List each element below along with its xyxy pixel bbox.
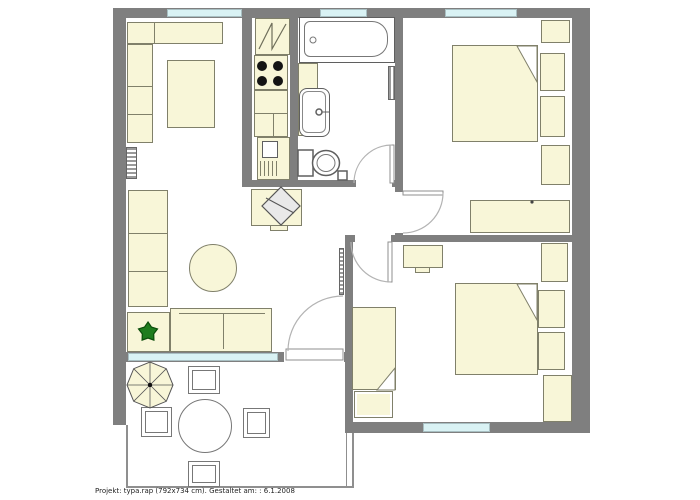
- wall-right: [572, 8, 590, 433]
- hall-desk-drawer: [270, 225, 288, 231]
- nightstand: [538, 332, 565, 370]
- radiator-bath-icon: [388, 66, 395, 100]
- corner-sofa-left: [127, 44, 153, 143]
- wall-kitchen-living: [242, 8, 252, 187]
- plant-table: [127, 312, 170, 352]
- coffee-table: [189, 244, 237, 292]
- bedroom2-desk: [403, 245, 443, 268]
- kitchen-drainboard: [260, 161, 278, 176]
- wardrobe: [541, 145, 570, 185]
- kitchen-sink-unit: [257, 137, 290, 180]
- radiator-living-icon: [126, 147, 137, 179]
- wardrobe: [543, 375, 572, 422]
- bedroom2-door-opening: [355, 234, 391, 243]
- fridge-icon: [255, 18, 290, 55]
- wall-bath-bedroom1: [395, 8, 403, 192]
- bedroom1-door-arc: [403, 193, 443, 233]
- bedroom1-door-leaf: [403, 191, 443, 195]
- nightstand: [538, 290, 565, 328]
- kitchen-sink-basin: [262, 141, 278, 158]
- wall-left: [113, 8, 126, 425]
- bedroom2-door-arc: [351, 242, 391, 282]
- terrace-door-arc: [288, 296, 343, 351]
- patio-chair: [188, 461, 220, 487]
- footer-caption: Projekt: typa.rap (792x734 cm). Gestalte…: [95, 487, 295, 495]
- kitchen-counter: [254, 90, 288, 137]
- hall-desk: [251, 189, 302, 226]
- nightstand: [540, 53, 565, 91]
- nightstand: [540, 96, 565, 137]
- wall-kitchen-bath: [290, 8, 298, 187]
- radiator-hall-icon: [339, 248, 344, 295]
- bedroom2-door-leaf: [388, 242, 392, 282]
- bath-door-leaf: [390, 145, 394, 183]
- sofa-left-wall: [128, 190, 168, 307]
- nightstand: [541, 20, 570, 43]
- sideboard: [470, 200, 570, 233]
- terrace-outline-left: [126, 425, 128, 487]
- floor-plan: Projekt: typa.rap (792x734 cm). Gestalte…: [0, 0, 700, 500]
- two-seat-sofa: [170, 308, 272, 352]
- patio-chair: [188, 366, 220, 394]
- bath-sink-icon: [299, 88, 330, 137]
- parasol-icon: [127, 362, 173, 408]
- single-bed: [352, 307, 396, 390]
- bath-door-arc: [354, 145, 392, 183]
- bedroom2-desk-drawer: [415, 267, 430, 273]
- window-bathroom: [320, 9, 367, 17]
- stove-icon: [254, 55, 288, 90]
- bedroom1-door-opening: [394, 192, 404, 233]
- patio-chair: [141, 407, 172, 437]
- patio-chair: [243, 408, 270, 438]
- window-bedroom2: [423, 423, 490, 432]
- window-living-bottom: [128, 353, 278, 361]
- dining-table: [167, 60, 215, 128]
- double-bed-bedroom2: [455, 283, 538, 375]
- nightstand: [354, 391, 393, 418]
- double-bed-bedroom1: [452, 45, 538, 142]
- terrace-door-opening: [284, 351, 344, 363]
- terrace-outline-right: [352, 433, 354, 487]
- window-living-top: [167, 9, 242, 17]
- wardrobe: [541, 243, 568, 282]
- corner-sofa-top: [127, 22, 223, 44]
- bathtub-basin: [304, 21, 388, 57]
- window-bedroom1: [445, 9, 517, 17]
- bathtub-icon: [299, 17, 395, 63]
- toilet-icon: [298, 150, 347, 180]
- bath-sink-basin: [302, 91, 326, 133]
- patio-table: [178, 399, 232, 453]
- terrace-outline-right-inner: [346, 433, 347, 487]
- bath-door-opening: [356, 179, 392, 188]
